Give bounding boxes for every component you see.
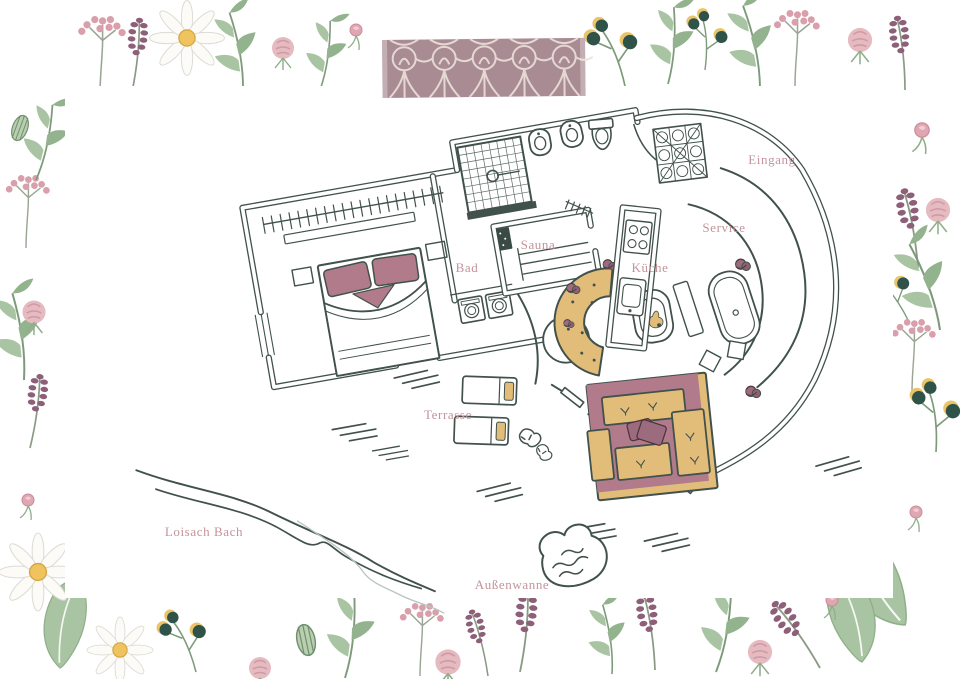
floor-plan-illustration: Eingang Service Küche Sauna Bad Terrasse… xyxy=(0,0,960,679)
label-bath: Bad xyxy=(456,260,479,275)
washi-tape xyxy=(382,38,593,98)
entrance-mat xyxy=(653,124,707,183)
terrace-lounger xyxy=(462,376,517,405)
stove xyxy=(623,220,652,255)
label-sauna: Sauna xyxy=(521,237,556,252)
label-outdoor-tub: Außenwanne xyxy=(475,577,550,592)
label-stream: Loisach Bach xyxy=(165,524,243,539)
label-terrace: Terrasse xyxy=(424,407,472,422)
stool xyxy=(727,341,746,360)
label-kitchen: Küche xyxy=(632,260,669,275)
living-room xyxy=(582,373,717,501)
kitchen-sink xyxy=(617,278,647,317)
scene-canvas: Eingang Service Küche Sauna Bad Terrasse… xyxy=(0,0,960,679)
label-entrance: Eingang xyxy=(748,152,796,167)
label-service: Service xyxy=(702,220,745,235)
